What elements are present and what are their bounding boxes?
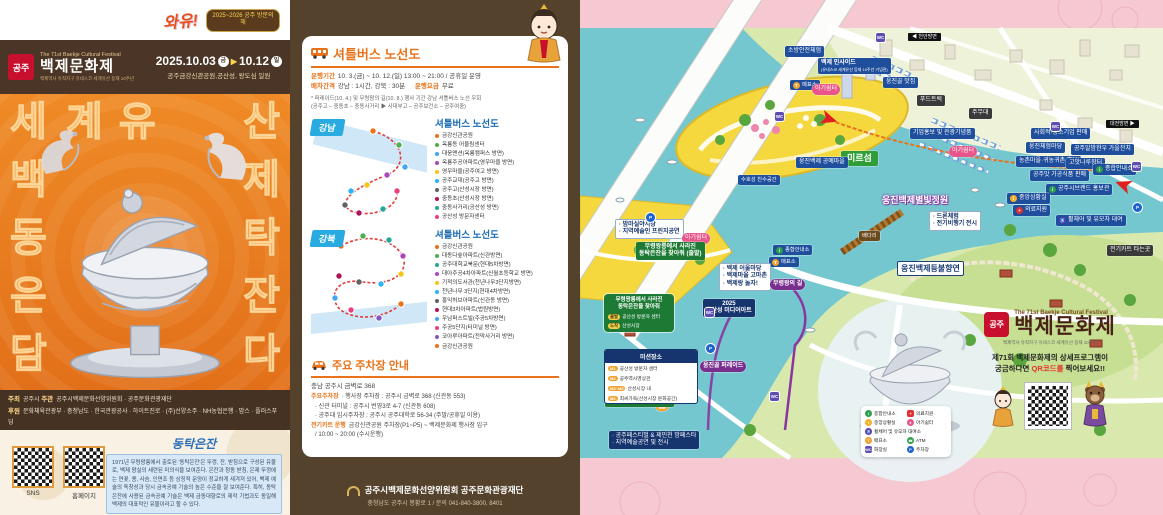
control-icon: i xyxy=(865,419,872,426)
mission-title: 미션장소 xyxy=(605,350,697,363)
shuttle-stop: 옥룡주공아파트(영우마을 방면) xyxy=(435,159,559,168)
toilet-icon: WC xyxy=(865,446,872,453)
shuttle-stop: 중동사거리(공산성 방면) xyxy=(435,204,559,213)
map-label: 배다리 xyxy=(859,231,880,241)
poster-character: 유 xyxy=(119,102,156,142)
map-label: 웅진백제 공예마을 xyxy=(796,157,848,168)
organizer-label: 주관 xyxy=(41,396,53,403)
map-label: i공주시브랜드 홍보관 xyxy=(1046,184,1112,195)
gangbuk-stop-list: 금강신관공원대동다숲아파트(신관방면)공주대학교북문(현대5차방면)대아주공4차… xyxy=(435,243,559,352)
qr-prompt: 제71회 백제문화제의 상세프로그램이 궁금하다면 QR코드를 찍어보세요!! xyxy=(946,352,1154,375)
qr-code-sns xyxy=(12,446,54,488)
organizers: 공주시백제문화선양위원회 · 공주문화관광재단 xyxy=(56,397,172,403)
map-label: 아기쉼터 xyxy=(949,146,977,157)
mascot-girl-icon xyxy=(987,385,1019,429)
dongtak-cup-illustration xyxy=(56,186,234,386)
legend-item: ●아기쉼터 xyxy=(907,419,947,426)
map-label: · 공주페스티벌 & 제민천 밤페스타· 지역예술공연 및 전시 xyxy=(609,431,699,449)
date-start: 2025.10.03 xyxy=(156,54,216,68)
festival-header-bar: 공주 The 71st Baekje Cultural Festival 백제문… xyxy=(0,40,290,94)
control-icon: i xyxy=(1010,195,1017,202)
map-label: i중앙상황실 xyxy=(1007,193,1050,204)
shuttle-stop: 공주대학교북문(현대5차방면) xyxy=(435,261,559,270)
poster-character: 다 xyxy=(243,334,280,374)
atm-icon: ₩ xyxy=(907,437,914,444)
shuttle-stop: 현대3차아파트(법원방면) xyxy=(435,306,559,315)
date-arrow-icon: ▶ xyxy=(231,57,237,66)
parking-row: · 신관 터미널 : 공주시 번영3로 4-7 (신관동 608) xyxy=(315,404,435,410)
shuttle-stop: 주공5단지(터미널 방면) xyxy=(435,324,559,333)
parking-icon: P xyxy=(1133,203,1142,212)
map-label: ♿휠체어 및 유모차 대여 xyxy=(1056,215,1126,226)
shuttle-stop: 코아루아파트(전막사거리 방면) xyxy=(435,333,559,342)
map-label: 웅진백제별빛정원 xyxy=(879,193,951,207)
poster-character: 은 xyxy=(10,276,47,316)
gongju-seal: 공주 xyxy=(984,312,1009,337)
footer-address: 충청남도 공주시 봉황로 1 / 문의 041-840-3800, 8401 xyxy=(290,498,580,507)
poster-character: 담 xyxy=(10,334,47,374)
map-label: 무령왕의 길 xyxy=(770,279,805,290)
mission-item: M3~M5산성시장 내 xyxy=(605,383,697,393)
info-icon: i xyxy=(1049,186,1056,193)
map-label: 전기카트 타는곳 xyxy=(1107,245,1153,256)
host: 공주시 xyxy=(23,397,40,403)
map-label: 웅진골 퍼레이드 xyxy=(700,361,746,372)
cover-bottom: SNS 홈페이지 동탁은잔 1971년 무령왕릉에서 출토된 '동탁은잔'은 뚜… xyxy=(0,430,290,515)
legend-item: WC화장실 xyxy=(865,446,905,453)
shuttle-stop: 중동초(산성시장 방면) xyxy=(435,195,559,204)
map-label: 사회적·중소기업 판매 xyxy=(1031,128,1090,139)
info-icon: i xyxy=(776,247,783,254)
legend-item: P주차장 xyxy=(907,446,947,453)
legend-item: ♿휠체어 및 유모차 대여소 xyxy=(865,428,947,435)
gangnam-badge: 강남 xyxy=(310,119,346,136)
ticket-icon: T xyxy=(772,259,779,266)
qr-homepage-label: 홈페이지 xyxy=(72,493,96,500)
sponsor-label: 후원 xyxy=(8,408,20,415)
shuttle-stop: 홍익허브아파트(신관동 방면) xyxy=(435,297,559,306)
poster-art: 세백동은담 계유 산제탁잔다 xyxy=(0,94,290,390)
cover-top-strip: 와유! 2025~2026 공주 방문의 해 xyxy=(0,0,290,40)
parking-row: · 행사장 주차장 : 공주시 금벽로 368 (신관동 553) xyxy=(342,394,466,400)
mission-places-box: 미션장소 M1공산성 방문자 센터M2공주역사영상관M3~M5산성시장 내M6최… xyxy=(604,349,698,404)
map-label: · 드론체험· 전기비행기 전시 xyxy=(929,211,981,231)
map-label: 웅진체험마당 xyxy=(1026,142,1065,153)
gongju-city-logo xyxy=(347,486,360,496)
shuttle-info: 운행기간10. 3.(금) ~ 10. 12.(일) 13:00 ~ 21:00… xyxy=(311,72,559,93)
qr-code-homepage xyxy=(63,446,105,488)
car-icon xyxy=(311,360,327,370)
toilet-icon: WC xyxy=(1132,162,1141,171)
mission-item: M6최씨가옥(산성시장 문화공간) xyxy=(605,393,697,403)
gangnam-stop-list: 금강신관공원옥룡동 어울림센터대웅맨션(옥룡캠퍼스 방면)옥룡주공아파트(영우마… xyxy=(435,132,559,222)
shuttle-stop: 천년나무 3단지(현대4차방면) xyxy=(435,288,559,297)
shuttle-stop: 기적의도서관(천년나무3단지방면) xyxy=(435,279,559,288)
shuttle-stop: 대동다숲아파트(신관방면) xyxy=(435,252,559,261)
phoenix-right-icon xyxy=(176,128,254,194)
map-label: 기업홍보 및 관광기념품 xyxy=(910,128,975,139)
festival-subtitle: 백제역사 유적지구 유네스코 세계유산 등재 10주년 xyxy=(40,76,134,82)
map-label: i종합안내소 xyxy=(773,245,812,255)
legend-item: +의료지원 xyxy=(907,410,947,417)
relic-description: 1971년 무령왕릉에서 출토된 '동탁은잔'은 뚜껑, 잔, 받침으로 구성된… xyxy=(106,454,282,514)
map-label: 백제 인사이드(유네스코 세계유산 등재 10주년 기념관) xyxy=(818,58,891,74)
mascot-bear-icon xyxy=(1077,379,1113,429)
gangbuk-route-map: 강북 xyxy=(311,226,427,343)
map-label: 주무대 xyxy=(969,108,992,119)
festival-venue: 공주금강신관공원,공산성, 왕도심 일원 xyxy=(156,70,282,80)
shuttle-stop: 공주고(산성시장 방면) xyxy=(435,186,559,195)
shuttle-stop: 공주교대(공주고 방면) xyxy=(435,177,559,186)
shuttle-note: * 퍼레이드(10. 4.) 및 무령왕의 길(10. 8.) 행사 기간 강남… xyxy=(311,95,559,111)
mascot-girl-icon xyxy=(516,2,572,64)
shuttle-stop: 영우마을(공주여고 방면) xyxy=(435,168,559,177)
parking-icon: P xyxy=(646,213,655,222)
legend-item: ₩ATM xyxy=(907,437,947,444)
shuttle-stop: 대웅맨션(옥룡캠퍼스 방면) xyxy=(435,150,559,159)
program-qr-code xyxy=(1025,383,1071,429)
medical-icon: + xyxy=(907,410,914,417)
parking-address: 충남 공주시 금벽로 368 xyxy=(311,382,559,392)
day-end-badge: 일 xyxy=(271,56,282,67)
treasure-hunt-box: 무령왕릉에서 사라진 동탁은잔을 찾아줘 출발공산성 방문자 센터 도착산성시장 xyxy=(604,294,674,332)
day-start-badge: 금 xyxy=(218,56,229,67)
parking-icon: P xyxy=(907,446,914,453)
map-label: 푸드트럭 xyxy=(917,95,945,106)
map-legend: i종합안내소+의료지원i중앙상황실●아기쉼터♿휠체어 및 유모차 대여소T매표소… xyxy=(861,406,951,457)
visit-year-badge: 2025~2026 공주 방문의 해 xyxy=(206,9,280,32)
festival-dates: 2025.10.03 금 ▶ 10.12 일 xyxy=(156,54,282,68)
map-label: · 밤마실야시장· 지역예술인 프린지공연 xyxy=(615,219,684,239)
festival-promo-block: 공주 The 71st Baekje Cultural Festival 백제문… xyxy=(946,310,1154,429)
mission-item: M2공주역사영상관 xyxy=(605,373,697,383)
poster-character: 잔 xyxy=(243,276,280,316)
toilet-icon: WC xyxy=(876,33,885,42)
map-label: 공주알밤한우 가을잔치 xyxy=(1071,144,1134,155)
parking-section-title: 주요 주차장 안내 xyxy=(311,357,559,378)
qr-sns-label: SNS xyxy=(26,490,39,497)
gangnam-list-title: 셔틀버스 노선도 xyxy=(435,116,559,130)
brochure: 와유! 2025~2026 공주 방문의 해 공주 The 71st Baekj… xyxy=(0,0,1163,515)
mission-item: M1공산성 방문자 센터 xyxy=(605,363,697,373)
promo-subtitle: 백제역사 유적지구 유네스코 세계유산 등재 10주년 xyxy=(946,340,1154,346)
poster-character: 동 xyxy=(10,218,47,258)
wheelchair-icon: ♿ xyxy=(1059,217,1066,224)
relic-title: 동탁은잔 xyxy=(106,435,282,452)
map-label: 웅진골 맛집 xyxy=(883,77,918,88)
ticket-icon: T xyxy=(793,82,800,89)
map-label: ◀ 천안방면 xyxy=(908,33,941,41)
map-label: 아기쉼터 xyxy=(812,84,840,95)
shuttle-stop: 공산성 방문자센터 xyxy=(435,213,559,222)
shuttle-stop: 금강신관공원 xyxy=(435,243,559,252)
parking-info: 충남 공주시 금벽로 368 주요주차장· 행사장 주차장 : 공주시 금벽로 … xyxy=(311,382,559,441)
footer-orgs: 공주시백제문화선양위원회 공주문화관광재단 xyxy=(365,485,524,495)
qr-sns: SNS xyxy=(12,446,54,500)
legend-item: i중앙상황실 xyxy=(865,419,905,426)
ticket-icon: T xyxy=(865,437,872,444)
festival-title-ko: 백제문화제 xyxy=(40,58,134,75)
legend-item: T매표소 xyxy=(865,437,905,444)
shuttle-stop: 대아주공4차아파트(신월초등학교 방면) xyxy=(435,270,559,279)
gangbuk-badge: 강북 xyxy=(310,230,346,247)
legend-item: i종합안내소 xyxy=(865,410,905,417)
map-label: 웅진백제등불향연 xyxy=(897,261,964,276)
map-label: T매표소 xyxy=(769,257,799,267)
ecart-hours: / 10:00 ~ 20:00 (수시운행) xyxy=(315,432,383,438)
shuttle-stop: 우남퍼스트빌(주공5차방면) xyxy=(435,315,559,324)
gangbuk-list-title: 셔틀버스 노선도 xyxy=(435,227,559,241)
sponsors: 문화체육관광부 · 충청남도 · 한국관광공사 · 하이트진로 · (주)선양소… xyxy=(8,409,277,426)
ecart-route: 금강신관공원 주차장(P1~P5) ~ 백제문화제 행사장 입구 xyxy=(349,423,488,429)
credits-band: 주최공주시 주관공주시백제문화선양위원회 · 공주문화관광재단 후원문화체육관광… xyxy=(0,390,290,430)
gangnam-route-section: 강남 셔틀버스 노선도 금강신관공원옥룡동 어울림센터대웅맨션(옥룡캠퍼스 방면… xyxy=(311,115,559,224)
map-label: 소방안전체험 xyxy=(785,46,824,57)
toilet-icon: WC xyxy=(770,392,779,401)
parking-icon: P xyxy=(706,344,715,353)
toilet-icon: WC xyxy=(1051,122,1060,131)
phoenix-left-icon xyxy=(34,124,104,184)
qr-homepage: 홈페이지 xyxy=(63,446,105,500)
host-label: 주최 xyxy=(8,396,20,403)
shuttle-stop: 옥룡동 어울림센터 xyxy=(435,141,559,150)
toilet-icon: WC xyxy=(705,308,714,317)
gangnam-route-map: 강남 xyxy=(311,115,427,224)
shuttle-card: 셔틀버스 노선도 운행기간10. 3.(금) ~ 10. 12.(일) 13:0… xyxy=(302,36,568,457)
baby-icon: ● xyxy=(907,419,914,426)
date-end: 10.12 xyxy=(239,54,269,68)
map-label: i종합안내소 xyxy=(1093,164,1136,175)
panel-front-cover: 와유! 2025~2026 공주 방문의 해 공주 The 71st Baekj… xyxy=(0,0,290,515)
wayu-logo: 와유! xyxy=(162,7,199,34)
map-label: · 백제 어울마당· 백제마을 고마촌· 백제랑 놀자! xyxy=(719,263,771,291)
map-label: 수호성 친수공간 xyxy=(738,175,780,185)
shuttle-stop: 금강신관공원 xyxy=(435,132,559,141)
panel-festival-map: 소방안전체험백제 인사이드(유네스코 세계유산 등재 10주년 기념관)T매표소… xyxy=(580,0,1163,515)
map-label: 무령왕릉에서 사라진동탁은잔을 찾아줘 (출발) xyxy=(636,242,705,260)
gongju-seal: 공주 xyxy=(8,54,34,80)
shuttle-stop: 금강신관공원 xyxy=(435,343,559,352)
map-label: +의료지원 xyxy=(1013,205,1050,216)
map-label: 공주맛 가공식품 판매 xyxy=(1030,170,1089,181)
middle-footer: 공주시백제문화선양위원회 공주문화관광재단 충청남도 공주시 봉황로 1 / 문… xyxy=(290,484,580,507)
bus-icon xyxy=(311,48,328,59)
info-icon: i xyxy=(1096,166,1103,173)
promo-title-ko: 백제문화제 xyxy=(1014,316,1116,338)
info-icon: i xyxy=(865,410,872,417)
toilet-icon: WC xyxy=(775,112,784,121)
poster-character: 탁 xyxy=(243,218,280,258)
parking-row: · 공주대 임시주차장 : 공주시 공주대학로 56-34 (주말/공휴일 이용… xyxy=(315,413,480,419)
gangbuk-route-section: 강북 셔틀버스 노선도 금강신관공원대동다숲아파트(신관방면)공주대학교북문(현… xyxy=(311,226,559,352)
wheelchair-icon: ♿ xyxy=(865,428,872,435)
medical-icon: + xyxy=(1016,207,1023,214)
map-label: 대전방면 ▶ xyxy=(1106,120,1139,128)
panel-shuttle-info: 셔틀버스 노선도 운행기간10. 3.(금) ~ 10. 12.(일) 13:0… xyxy=(290,0,580,515)
